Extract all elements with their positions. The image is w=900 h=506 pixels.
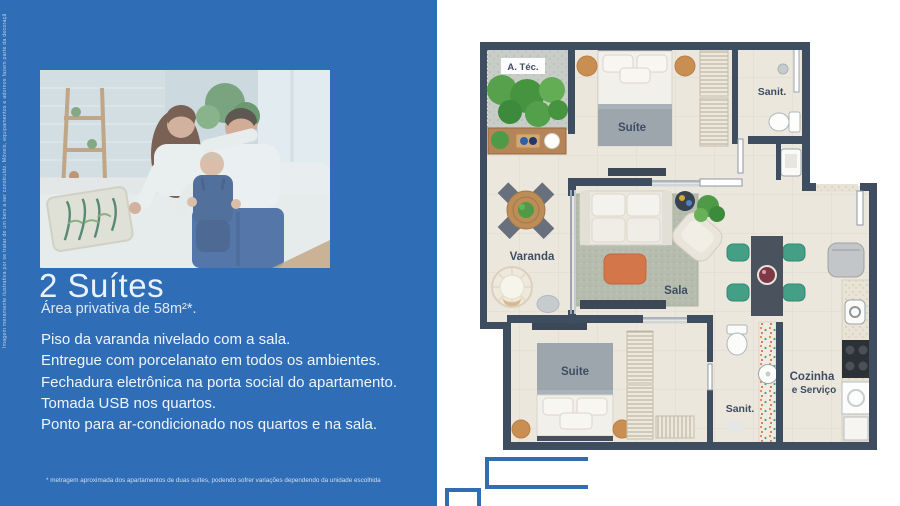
feature-item: Tomada USB nos quartos. [41, 393, 397, 414]
closet-rack [700, 98, 728, 146]
laundry-tub [844, 417, 868, 440]
tv-console-suite-bottom [532, 322, 587, 330]
toilet-bottom [727, 325, 747, 355]
fridge [828, 243, 864, 277]
sideboard [488, 128, 566, 154]
closet-rack [627, 385, 653, 439]
pouf [512, 420, 530, 438]
bathroom-bottom-door [708, 364, 712, 390]
toilet-top [769, 112, 800, 132]
kitchen-sink [845, 300, 865, 324]
bed-suite-bottom [537, 343, 613, 441]
floorplan: A. Téc. Suíte Sanit. Varanda Sala Suite … [480, 38, 878, 453]
ottoman [537, 296, 559, 313]
page: Imagem meramente ilustrativa por se trat… [0, 0, 900, 506]
room-label-atec: A. Téc. [507, 62, 538, 73]
entry-door [700, 179, 742, 186]
vertical-disclaimer: Imagem meramente ilustrativa por se trat… [2, 14, 13, 348]
room-label-sanit-bottom: Sanit. [726, 403, 755, 415]
kitchen-counter-top [814, 184, 858, 192]
footnote: * metragem aproximada dos apartamentos d… [46, 477, 386, 484]
washbasin-niche [781, 149, 801, 176]
decorative-corner [445, 488, 481, 506]
closet-rack [700, 50, 728, 96]
closet-rack [656, 416, 694, 438]
family-photo [40, 70, 330, 268]
plan-title: 2 Suítes [39, 269, 164, 302]
room-label-sala: Sala [664, 285, 688, 297]
hanging-chair [492, 267, 532, 307]
feature-item: Entregue com porcelanato em todos os amb… [41, 350, 397, 371]
bath-mat [726, 420, 744, 432]
washing-machine [842, 382, 870, 414]
tv-console-living [580, 300, 666, 309]
service-door [857, 191, 863, 225]
feature-list: Piso da varanda nivelado com a sala. Ent… [41, 329, 397, 435]
room-label-kitchen-2: e Serviço [792, 385, 836, 396]
side-table [675, 191, 695, 211]
closet-rack [627, 331, 653, 383]
room-label-suite-top: Suíte [618, 122, 646, 134]
left-info-panel: Imagem meramente ilustrativa por se trat… [0, 0, 437, 506]
room-label-kitchen-1: Cozinha [790, 371, 835, 383]
room-label-varanda: Varanda [510, 251, 555, 263]
room-label-suite-bottom: Suite [561, 366, 589, 378]
feature-item: Fechadura eletrônica na porta social do … [41, 372, 397, 393]
tv-console-suite-top [608, 168, 666, 176]
stove [842, 340, 870, 378]
plan-subtitle: Área privativa de 58m²*. [41, 301, 197, 317]
room-label-sanit-top: Sanit. [758, 86, 787, 98]
pouf [675, 56, 695, 76]
feature-item: Ponto para ar-condicionado nos quartos e… [41, 414, 397, 435]
decorative-bracket [485, 457, 588, 489]
pouf [577, 56, 597, 76]
sofa [580, 191, 672, 245]
bathroom-top-door [738, 139, 743, 173]
feature-item: Piso da varanda nivelado com a sala. [41, 329, 397, 350]
coffee-table [604, 254, 646, 284]
